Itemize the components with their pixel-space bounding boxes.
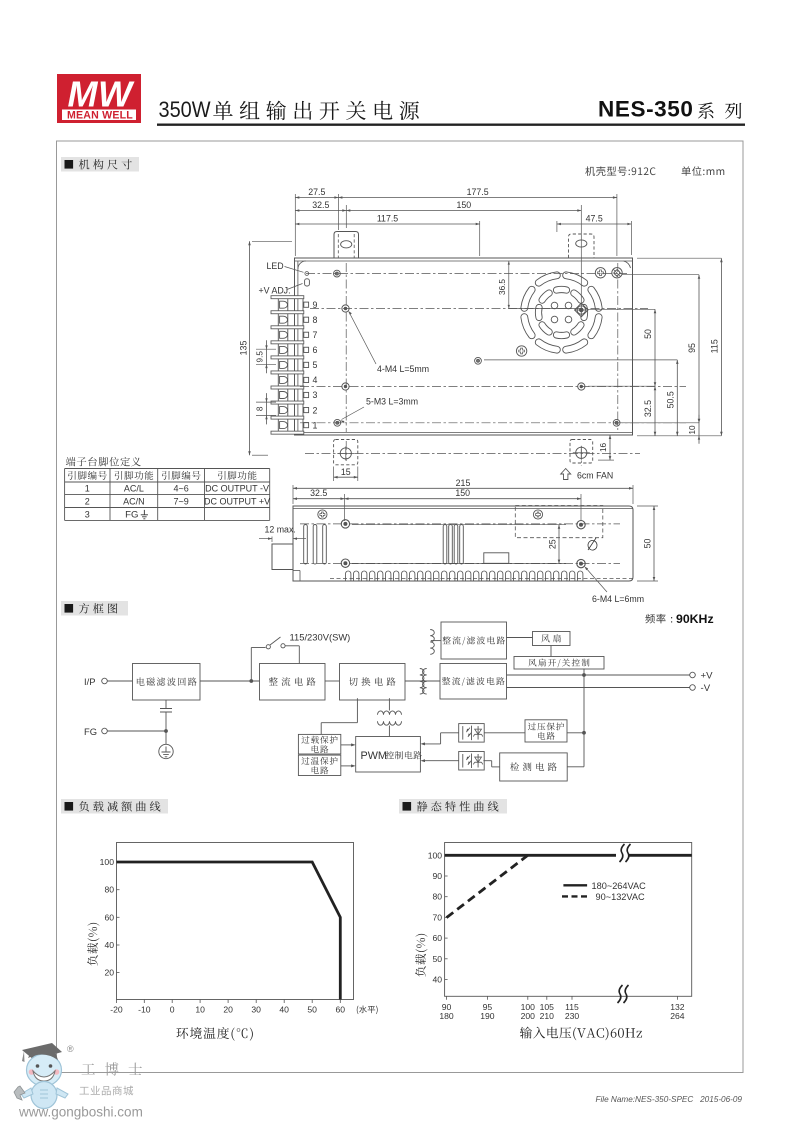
svg-text:47.5: 47.5 bbox=[586, 213, 603, 223]
svg-text:2: 2 bbox=[313, 405, 318, 415]
svg-text:32.5: 32.5 bbox=[310, 488, 327, 498]
svg-text:50: 50 bbox=[643, 539, 653, 549]
svg-text:6cm FAN: 6cm FAN bbox=[577, 471, 613, 481]
svg-text:27.5: 27.5 bbox=[308, 187, 325, 197]
svg-text:50: 50 bbox=[307, 1005, 317, 1015]
svg-text:5: 5 bbox=[313, 360, 318, 370]
svg-text:6: 6 bbox=[313, 345, 318, 355]
svg-text:4-M4 L=5mm: 4-M4 L=5mm bbox=[377, 364, 429, 374]
svg-text:+V: +V bbox=[701, 670, 714, 681]
svg-text:20: 20 bbox=[104, 968, 114, 978]
svg-text:210: 210 bbox=[540, 1011, 555, 1021]
svg-text:8: 8 bbox=[313, 315, 318, 325]
svg-text:100: 100 bbox=[428, 850, 443, 860]
svg-text:80: 80 bbox=[104, 885, 114, 895]
svg-text:7: 7 bbox=[313, 330, 318, 340]
svg-text:40: 40 bbox=[104, 940, 114, 950]
svg-text:FG: FG bbox=[125, 509, 138, 520]
svg-text:6-M4 L=6mm: 6-M4 L=6mm bbox=[592, 594, 644, 604]
svg-text:50: 50 bbox=[643, 329, 653, 339]
svg-text:15: 15 bbox=[341, 467, 351, 477]
svg-text:150: 150 bbox=[455, 488, 470, 498]
svg-text:50.5: 50.5 bbox=[666, 391, 676, 408]
svg-text:10: 10 bbox=[195, 1005, 205, 1015]
svg-text:AC/L: AC/L bbox=[124, 484, 144, 494]
svg-text:-20: -20 bbox=[110, 1005, 123, 1015]
svg-text:264: 264 bbox=[670, 1011, 685, 1021]
svg-text:30: 30 bbox=[251, 1005, 261, 1015]
svg-text:200: 200 bbox=[521, 1011, 536, 1021]
svg-text:190: 190 bbox=[480, 1011, 495, 1021]
svg-text:DC OUTPUT -V: DC OUTPUT -V bbox=[205, 484, 269, 494]
svg-text:100: 100 bbox=[100, 857, 115, 867]
svg-text:150: 150 bbox=[456, 200, 471, 210]
svg-text:16: 16 bbox=[599, 443, 608, 453]
svg-text:1: 1 bbox=[85, 484, 90, 494]
svg-text:90KHz: 90KHz bbox=[676, 612, 714, 626]
svg-text:80: 80 bbox=[433, 892, 443, 902]
svg-text:www.gongboshi.com: www.gongboshi.com bbox=[18, 1105, 143, 1120]
svg-text:File Name:NES-350-SPEC 2015-: File Name:NES-350-SPEC 2015-06-09 bbox=[595, 1095, 742, 1104]
svg-text:177.5: 177.5 bbox=[467, 187, 489, 197]
svg-text:215: 215 bbox=[456, 478, 471, 488]
svg-text:180~264VAC: 180~264VAC bbox=[592, 881, 647, 891]
svg-text:10: 10 bbox=[688, 425, 697, 435]
svg-text:20: 20 bbox=[223, 1005, 233, 1015]
svg-text:115: 115 bbox=[710, 339, 720, 353]
svg-text:135: 135 bbox=[239, 341, 249, 356]
svg-text:MEAN WELL: MEAN WELL bbox=[67, 110, 133, 122]
svg-text:60: 60 bbox=[336, 1005, 346, 1015]
svg-text:7~9: 7~9 bbox=[173, 496, 188, 506]
svg-text:4~6: 4~6 bbox=[173, 484, 188, 494]
svg-text:PWM: PWM bbox=[361, 750, 387, 762]
svg-text:32.5: 32.5 bbox=[312, 200, 329, 210]
svg-text:95: 95 bbox=[687, 343, 697, 353]
svg-text:60: 60 bbox=[104, 912, 114, 922]
svg-text:AC/N: AC/N bbox=[123, 496, 145, 506]
svg-text:32.5: 32.5 bbox=[643, 400, 653, 417]
svg-text:40: 40 bbox=[433, 975, 443, 985]
svg-text:90~132VAC: 90~132VAC bbox=[596, 892, 645, 902]
svg-text:DC OUTPUT +V: DC OUTPUT +V bbox=[204, 496, 270, 506]
svg-text:NES-350: NES-350 bbox=[598, 97, 694, 122]
svg-text:-10: -10 bbox=[138, 1005, 151, 1015]
svg-text:-V: -V bbox=[701, 683, 711, 694]
svg-text:350W: 350W bbox=[159, 98, 211, 122]
svg-text:50: 50 bbox=[433, 954, 443, 964]
svg-text:4: 4 bbox=[313, 375, 318, 385]
svg-text:+V ADJ.: +V ADJ. bbox=[259, 286, 291, 296]
svg-text:180: 180 bbox=[439, 1011, 454, 1021]
svg-text:3: 3 bbox=[85, 509, 90, 519]
svg-text:70: 70 bbox=[433, 912, 443, 922]
svg-text:5-M3 L=3mm: 5-M3 L=3mm bbox=[366, 397, 418, 407]
svg-text:0: 0 bbox=[170, 1005, 175, 1015]
svg-text:8: 8 bbox=[256, 406, 265, 411]
svg-text:36.5: 36.5 bbox=[498, 279, 507, 295]
svg-text:90: 90 bbox=[433, 871, 443, 881]
svg-text:MW: MW bbox=[68, 74, 135, 115]
svg-text:230: 230 bbox=[565, 1011, 580, 1021]
svg-text:®: ® bbox=[67, 1044, 74, 1054]
svg-text:I/P: I/P bbox=[84, 676, 95, 687]
svg-text:FG: FG bbox=[84, 726, 97, 737]
svg-text:LED: LED bbox=[267, 261, 284, 271]
svg-text:3: 3 bbox=[313, 390, 318, 400]
svg-text:1: 1 bbox=[313, 420, 318, 430]
svg-text:117.5: 117.5 bbox=[377, 213, 398, 223]
svg-text:25: 25 bbox=[548, 539, 558, 549]
svg-text:9.5: 9.5 bbox=[256, 351, 265, 363]
svg-text:40: 40 bbox=[279, 1005, 289, 1015]
svg-text:60: 60 bbox=[433, 933, 443, 943]
svg-text:12 max.: 12 max. bbox=[265, 525, 296, 535]
svg-text:2: 2 bbox=[85, 496, 90, 506]
svg-text:115/230V(SW): 115/230V(SW) bbox=[290, 632, 351, 643]
